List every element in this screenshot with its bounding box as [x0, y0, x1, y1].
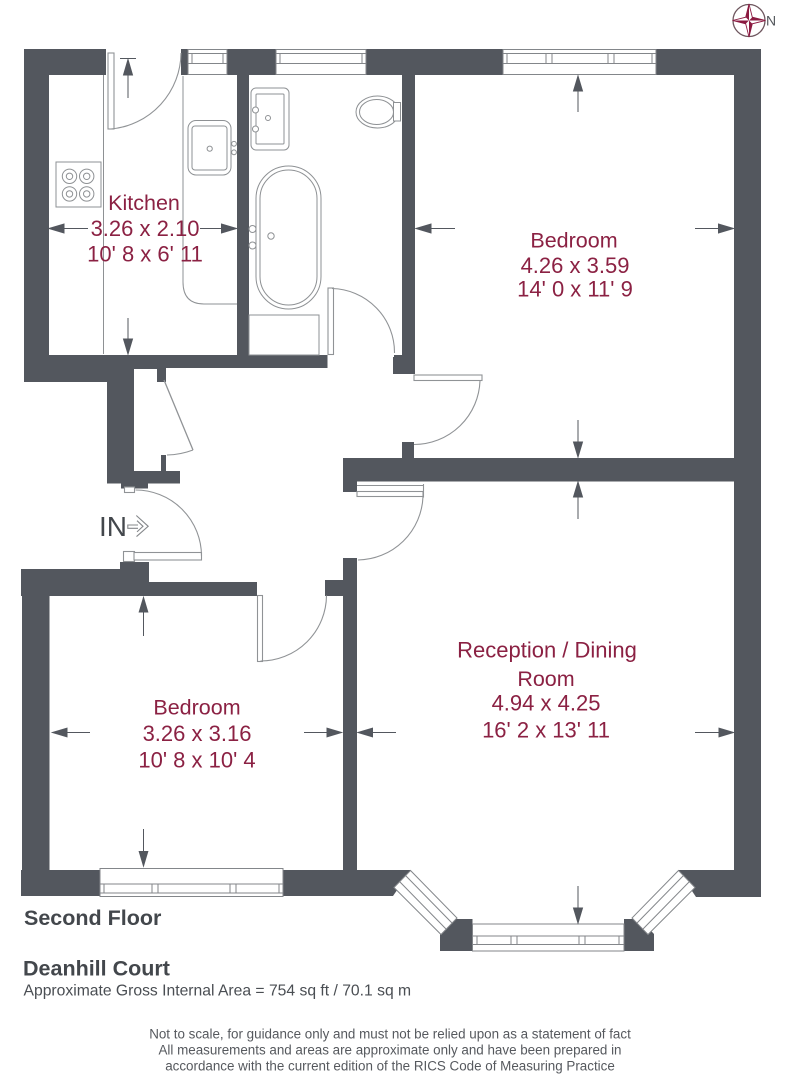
- svg-text:Approximate Gross Internal Are: Approximate Gross Internal Area = 754 sq…: [24, 983, 412, 1000]
- svg-text:Bedroom: Bedroom: [153, 696, 240, 720]
- svg-text:14' 0 x 11' 9: 14' 0 x 11' 9: [517, 277, 633, 302]
- svg-text:Second Floor: Second Floor: [24, 906, 162, 930]
- svg-text:IN: IN: [99, 511, 127, 542]
- svg-text:Deanhill Court: Deanhill Court: [23, 957, 170, 981]
- svg-text:10' 8 x 10' 4: 10' 8 x 10' 4: [138, 748, 255, 773]
- svg-text:3.26 x 2.10: 3.26 x 2.10: [91, 216, 200, 241]
- svg-text:4.26 x 3.59: 4.26 x 3.59: [521, 253, 630, 278]
- svg-text:Kitchen: Kitchen: [108, 191, 180, 215]
- svg-text:N: N: [766, 13, 776, 29]
- svg-text:accordance with the current ed: accordance with the current edition of t…: [165, 1059, 615, 1074]
- svg-text:3.26 x 3.16: 3.26 x 3.16: [143, 721, 252, 746]
- svg-text:Reception / Dining: Reception / Dining: [457, 638, 637, 663]
- svg-text:16' 2 x 13' 11: 16' 2 x 13' 11: [482, 718, 610, 743]
- svg-text:Not to scale, for guidance onl: Not to scale, for guidance only and must…: [149, 1027, 631, 1042]
- svg-text:All measurements and areas are: All measurements and areas are approxima…: [158, 1043, 621, 1058]
- svg-text:10' 8 x 6' 11: 10' 8 x 6' 11: [87, 242, 203, 267]
- svg-text:4.94 x 4.25: 4.94 x 4.25: [492, 691, 601, 716]
- svg-text:Bedroom: Bedroom: [530, 229, 617, 253]
- svg-text:Room: Room: [517, 667, 574, 691]
